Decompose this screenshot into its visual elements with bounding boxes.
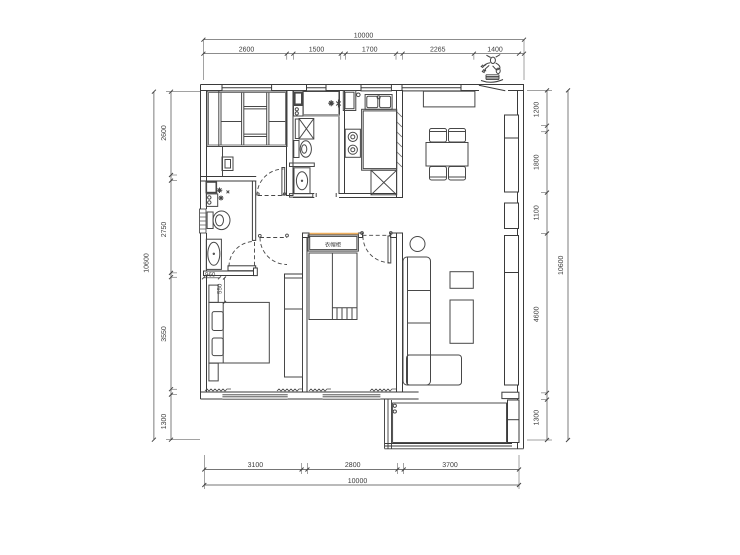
svg-text:衣帽柜: 衣帽柜 [325, 242, 342, 249]
svg-text:1500: 1500 [309, 47, 325, 54]
svg-text:1300: 1300 [534, 410, 541, 426]
svg-text:3700: 3700 [442, 462, 458, 469]
svg-text:1300: 1300 [161, 414, 168, 430]
svg-text:960: 960 [205, 272, 216, 279]
svg-text:10600: 10600 [558, 255, 565, 275]
svg-text:10000: 10000 [348, 478, 368, 485]
svg-text:2750: 2750 [161, 222, 168, 238]
svg-text:3100: 3100 [248, 462, 264, 469]
svg-text:1200: 1200 [534, 102, 541, 118]
svg-text:4600: 4600 [534, 306, 541, 322]
svg-text:1700: 1700 [362, 47, 378, 54]
svg-text:1400: 1400 [487, 47, 503, 54]
svg-text:1800: 1800 [534, 154, 541, 170]
svg-text:10600: 10600 [144, 253, 151, 273]
svg-text:2600: 2600 [161, 125, 168, 141]
svg-text:2265: 2265 [430, 47, 446, 54]
svg-text:2800: 2800 [345, 462, 361, 469]
svg-text:2600: 2600 [239, 47, 255, 54]
svg-text:1100: 1100 [534, 205, 541, 220]
svg-text:3550: 3550 [161, 326, 168, 342]
svg-text:10000: 10000 [354, 33, 374, 40]
